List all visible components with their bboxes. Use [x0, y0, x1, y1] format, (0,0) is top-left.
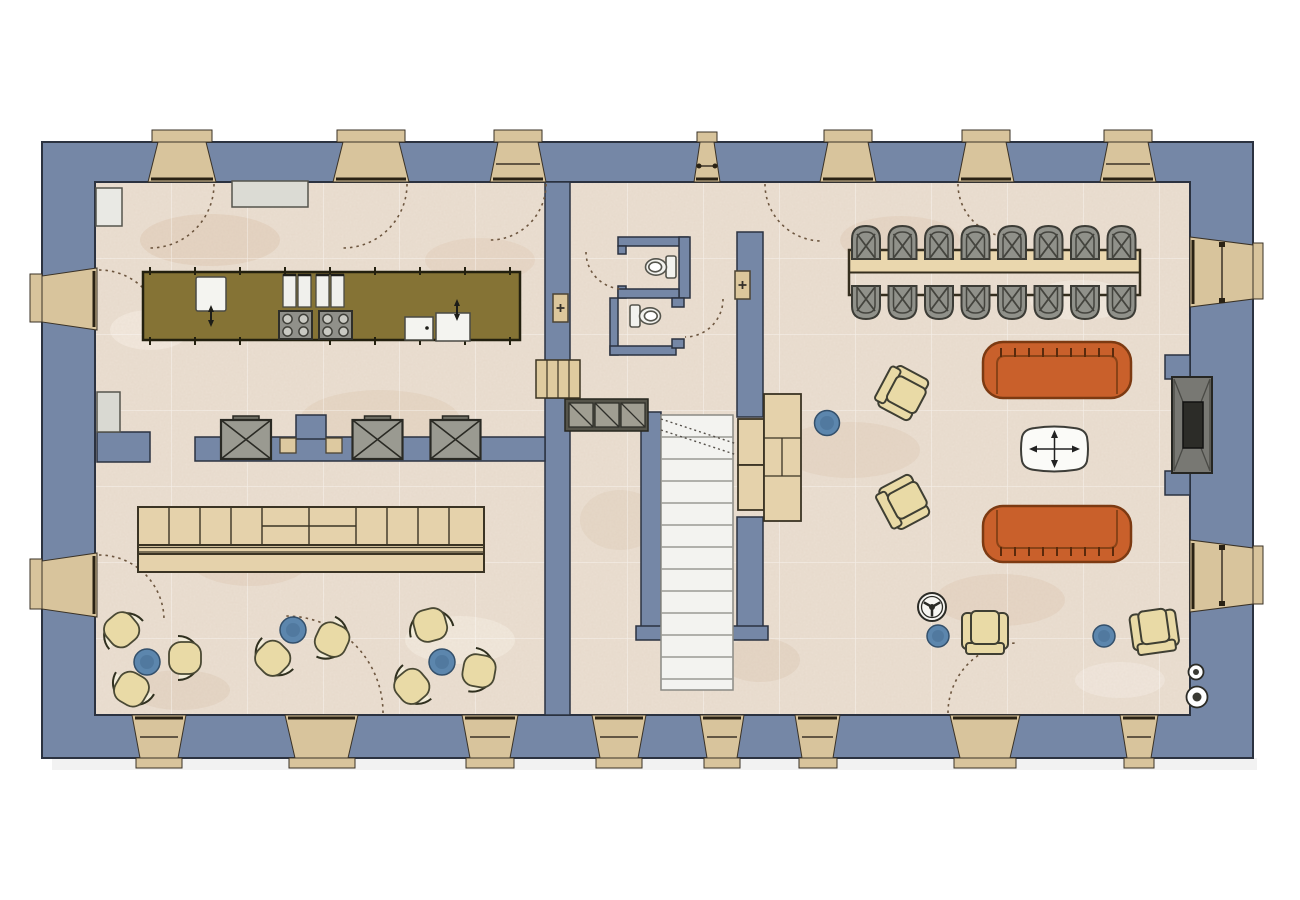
window-mullion-dot — [713, 164, 718, 169]
building-shadow — [52, 758, 1257, 770]
stair-niche-hatch — [569, 403, 645, 427]
wall-kitchen-hall-top — [545, 182, 570, 362]
dining-chair — [925, 286, 953, 319]
sill-bottom-4 — [596, 758, 642, 768]
stool — [927, 625, 949, 647]
lounge-buffet — [138, 507, 484, 572]
island-sink-right — [436, 313, 470, 341]
door-bottom-7 — [950, 715, 1020, 758]
sill-bottom-5 — [704, 758, 740, 768]
wall-kitchen-lounge-stub — [296, 415, 326, 439]
door-top-6 — [958, 142, 1014, 182]
dining-chair — [889, 226, 917, 259]
wall-appliance — [97, 392, 120, 432]
counter-knob — [425, 326, 429, 330]
dining-chair — [998, 226, 1026, 259]
dining-chair — [962, 286, 990, 319]
door-top-1 — [148, 142, 216, 182]
dining-chair — [1071, 286, 1099, 319]
sill-right-1 — [1253, 243, 1263, 299]
dining-chair — [889, 286, 917, 319]
armchair — [1129, 607, 1181, 656]
island-counter-unit — [405, 317, 433, 340]
dining-chair — [1035, 226, 1063, 259]
sill-top-2 — [337, 130, 405, 142]
radiator-hall-right — [735, 271, 750, 299]
tall-cabinet — [96, 188, 122, 226]
radiator-hall-left — [553, 294, 568, 322]
cooktop-right — [319, 311, 352, 339]
sill-top-5 — [824, 130, 872, 142]
dining-chair — [962, 226, 990, 259]
sill-top-4 — [697, 132, 717, 142]
door-top-5 — [820, 142, 876, 182]
fireplace — [1172, 377, 1212, 473]
stair-flight — [661, 415, 733, 690]
wall-sideboard — [232, 181, 308, 207]
wall-hall-living-bottom — [737, 517, 763, 628]
armchair — [962, 611, 1008, 654]
wall-post-right — [326, 438, 342, 453]
sofa-south — [983, 506, 1131, 562]
equipment-box-3 — [431, 416, 481, 459]
sill-bottom-1 — [136, 758, 182, 768]
door-bottom-2 — [285, 715, 358, 758]
wc-wall-left-upper-a — [618, 246, 626, 254]
sill-bottom-6 — [799, 758, 837, 768]
floor-plan-drawing — [0, 0, 1300, 900]
wall-post-left — [280, 438, 296, 453]
sill-bottom-7 — [954, 758, 1016, 768]
stool — [815, 411, 840, 436]
sill-bottom-3 — [466, 758, 514, 768]
spoke-table — [918, 593, 946, 621]
wc-wall-divider — [618, 289, 679, 298]
sill-bottom-8 — [1124, 758, 1154, 768]
dining-chair — [852, 226, 880, 259]
stool — [1093, 625, 1115, 647]
dining-chair — [852, 286, 880, 319]
wc-wall-right-lower-b — [672, 339, 684, 348]
floor-plan-page — [0, 0, 1300, 900]
dining-chair — [998, 286, 1026, 319]
sill-top-3 — [494, 130, 542, 142]
dining-chair — [1108, 226, 1136, 259]
cooktop-left — [279, 311, 312, 339]
dining-chair — [925, 226, 953, 259]
dining-chair — [1071, 226, 1099, 259]
wc-wall-right-lower-a — [672, 298, 684, 307]
sill-left-1 — [30, 274, 42, 322]
sill-left-2 — [30, 559, 42, 609]
stool — [134, 649, 160, 675]
fireplace-pier-top — [1165, 355, 1190, 379]
wall-stair-left — [641, 412, 661, 630]
wall-left-pier — [97, 432, 150, 462]
firebox — [1183, 402, 1203, 448]
sill-top-1 — [152, 130, 212, 142]
door-top-2 — [333, 142, 409, 182]
sofa-north — [983, 342, 1131, 398]
window-mullion-dot — [697, 164, 702, 169]
equipment-box-2 — [353, 416, 403, 459]
wall-hall-living-top — [737, 232, 763, 417]
door-left-1 — [42, 268, 97, 330]
wall-lounge-hall — [545, 398, 570, 715]
fireplace-pier-bottom — [1165, 471, 1190, 495]
wc-wall-bottom — [610, 346, 676, 355]
sill-right-2 — [1253, 546, 1263, 604]
sill-top-7 — [1104, 130, 1152, 142]
wall-hall-living-cap — [732, 626, 768, 640]
wc-wall-right-upper — [679, 237, 690, 298]
window-top-7 — [1100, 142, 1156, 182]
stool — [280, 617, 306, 643]
sill-bottom-2 — [289, 758, 355, 768]
dining-chair — [1108, 286, 1136, 319]
sill-top-6 — [962, 130, 1010, 142]
dining-chair — [1035, 286, 1063, 319]
window-top-3 — [490, 142, 546, 182]
door-left-2 — [42, 553, 97, 617]
wc-wall-top — [618, 237, 688, 246]
side-steps — [536, 360, 580, 398]
coffee-table — [1021, 427, 1088, 472]
equipment-box-1 — [221, 416, 271, 459]
stool — [429, 649, 455, 675]
